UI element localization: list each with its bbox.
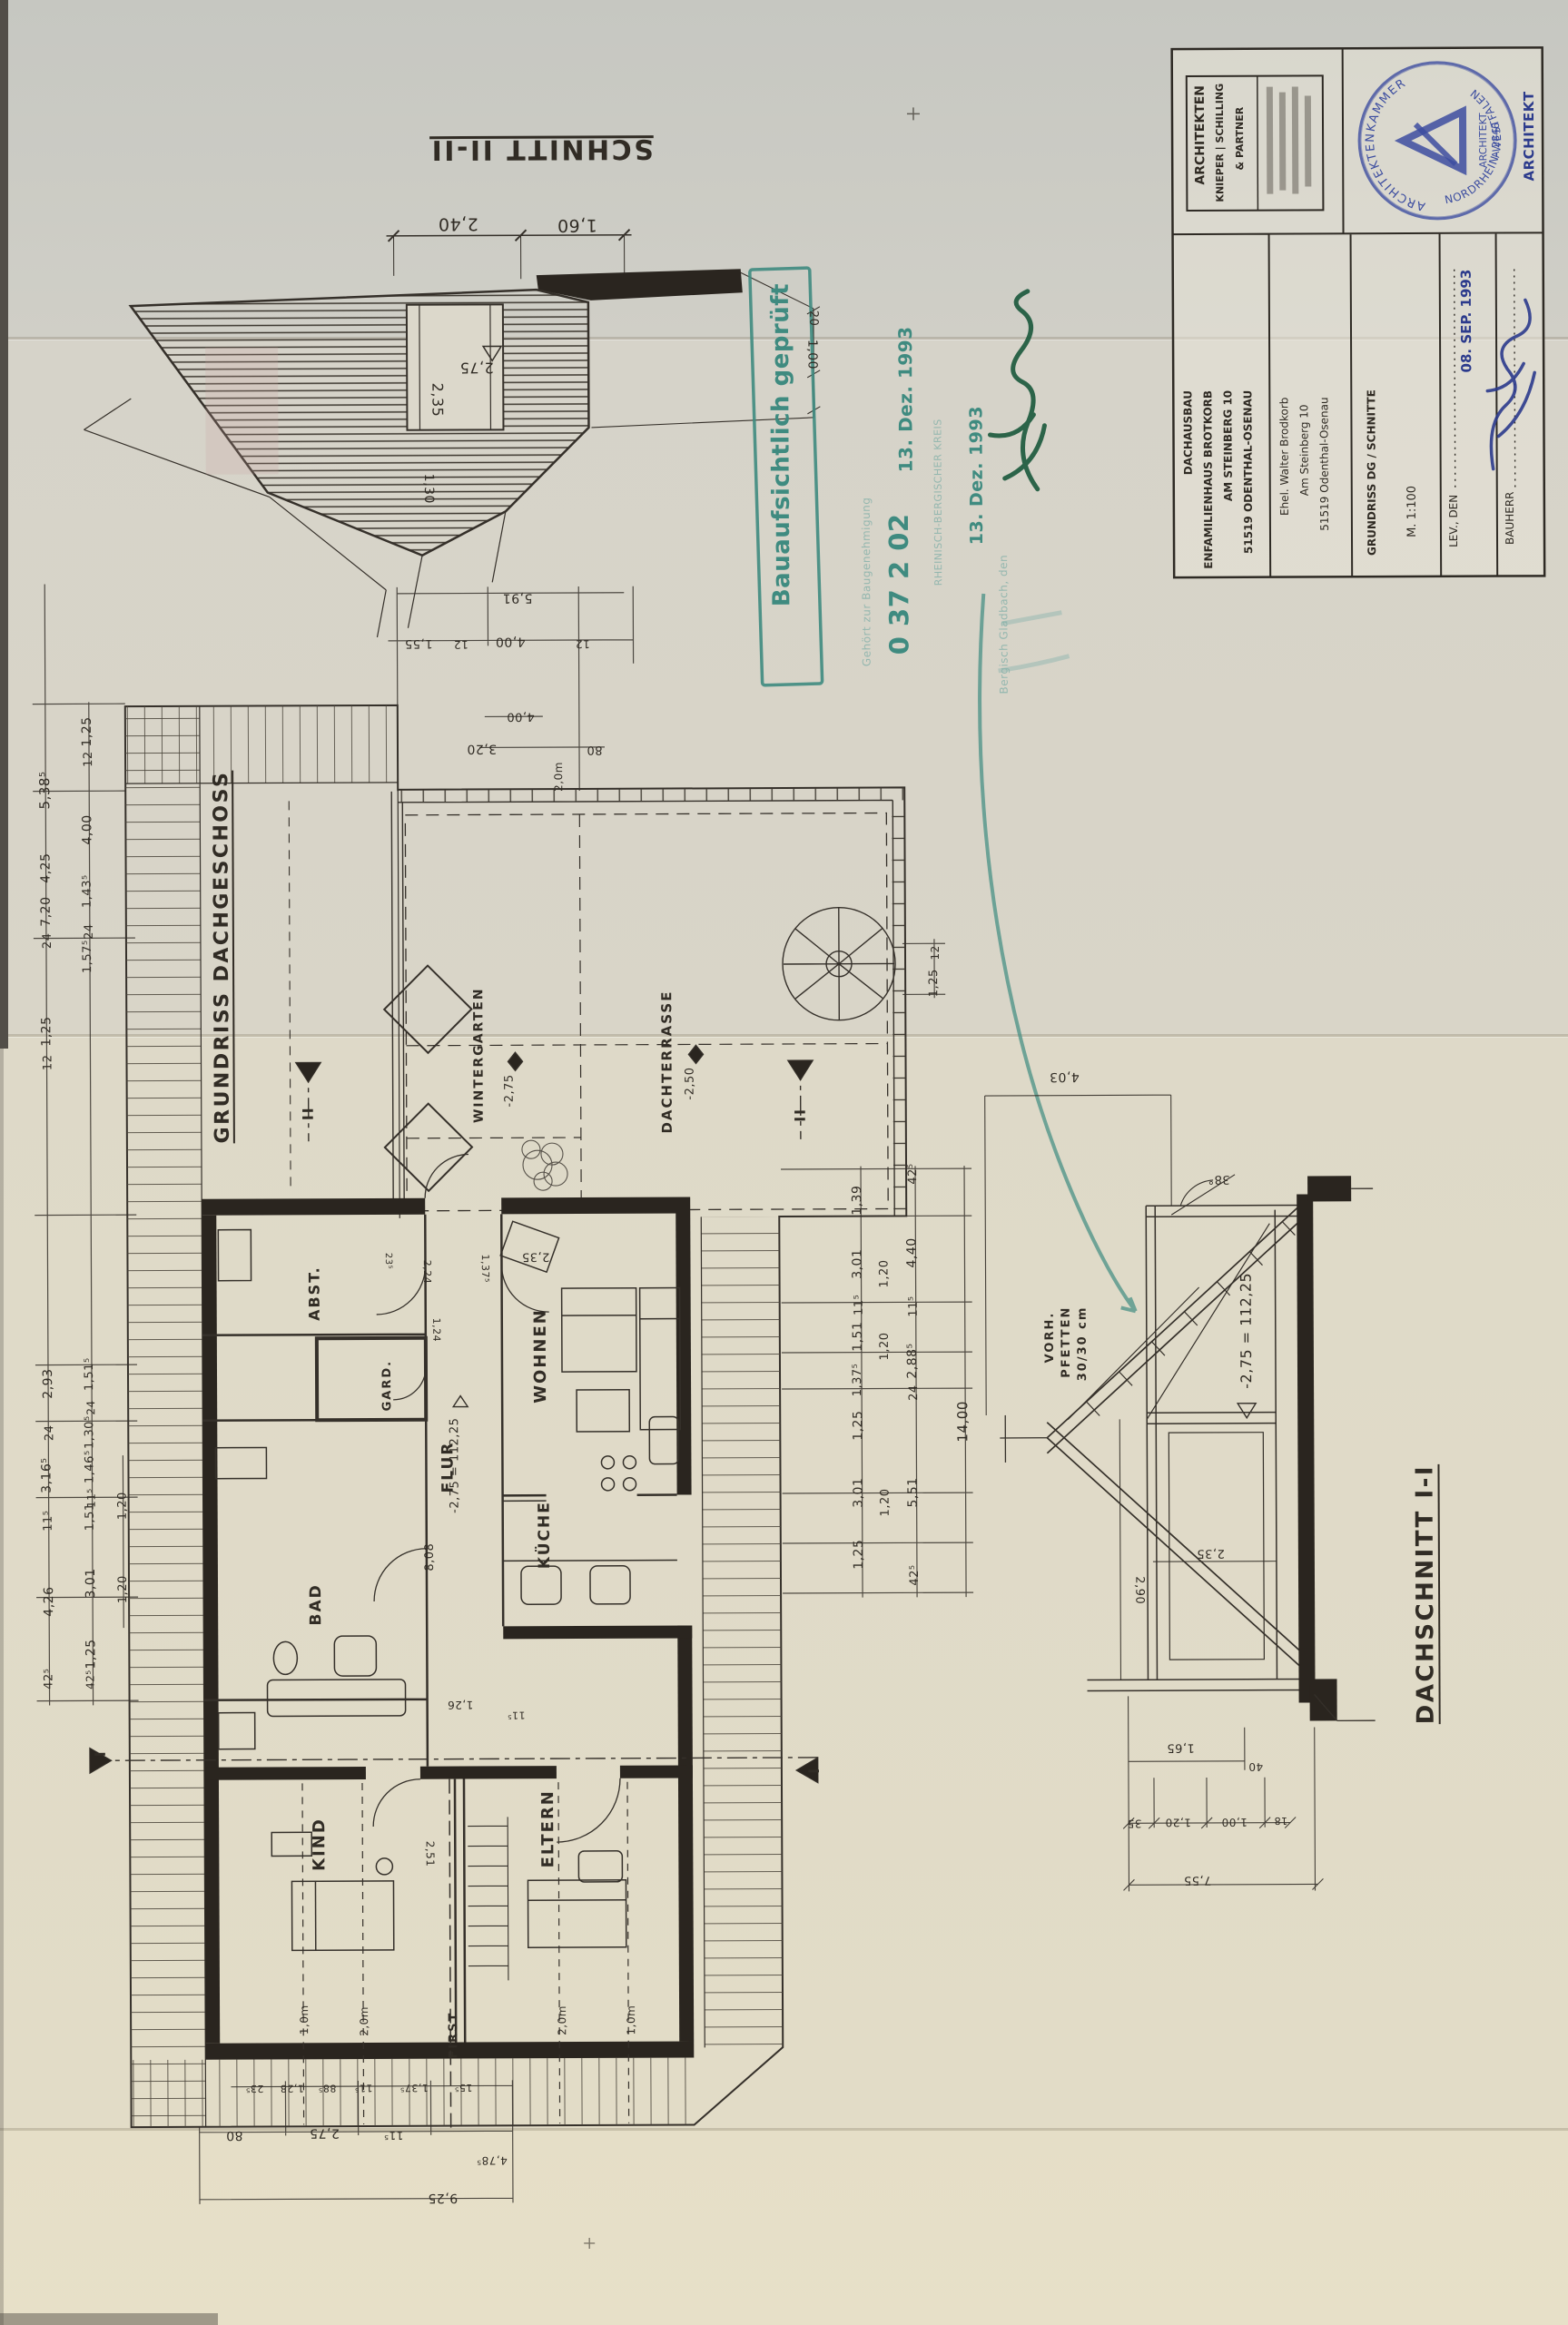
dim-label: 24 [909, 1384, 920, 1401]
svg-text:A 2846: A 2846 [1490, 123, 1502, 158]
dim-label: 1,20 [879, 1259, 890, 1287]
project-line: ENFAMILIENHAUS BROTKORB [1202, 390, 1214, 569]
dim-label: -2,75 = 112,25 [1239, 1273, 1254, 1389]
dim-label: 1,25 [853, 1540, 865, 1570]
dim-label: 1,25 [82, 716, 94, 746]
dim-label: 1,25 [41, 1017, 53, 1047]
dim-label: 4,25 [41, 853, 53, 883]
dim-label: 42⁵ [908, 1163, 919, 1184]
dim-label: 2,51 [424, 1841, 435, 1867]
firm-name-line3: & PARTNER [1235, 107, 1245, 171]
svg-text:ARCHITEKT: ARCHITEKT [1477, 113, 1489, 168]
dim-label: 4,00 [495, 635, 525, 646]
dim-label: 42⁵ [910, 1564, 921, 1585]
dim-label: 7,20 [41, 897, 53, 927]
plan-furniture [214, 1220, 682, 1950]
dim-label: 80 [587, 744, 603, 754]
room-label-eltern: ELTERN [540, 1789, 556, 1867]
dim-label: 1,0m [626, 2005, 637, 2035]
dim-label: 4,26 [44, 1587, 55, 1617]
dim-label: 1,20 [118, 1575, 129, 1603]
dim-label: 11⁵ [354, 2083, 372, 2093]
section-1-title: DACHSCHNITT I-I [1414, 1464, 1437, 1724]
approval-stamp: Bauaufsichtlich geprüft [770, 283, 794, 606]
dim-label: 30/30 cm [1078, 1306, 1090, 1382]
plan-walls [202, 1197, 694, 2059]
dim-label: 23⁵ [383, 1253, 392, 1269]
dim-label: 88⁵ [318, 2083, 336, 2093]
dim-label: PFETTEN [1061, 1306, 1073, 1378]
dim-label: 5,91 [502, 591, 532, 603]
dim-label: 1,65 [1167, 1741, 1195, 1752]
dim-label: 1,26 [448, 1699, 474, 1709]
dim-label: VORH. [1045, 1312, 1057, 1364]
dim-label: 4,00 [82, 814, 94, 844]
dim-label: II [794, 1108, 807, 1122]
dim-label: 2,35 [521, 1250, 549, 1261]
dim-label: FIRST [449, 2012, 460, 2059]
project-line: 51519 ODENTHAL-OSENAU [1242, 390, 1254, 554]
room-label-garderobe: GARD. [382, 1360, 394, 1412]
dim-label: -2,75 [505, 1074, 517, 1107]
dim-label: RHEINISCH-BERGISCHER KREIS [933, 419, 943, 586]
scanned-sheet: ARCHITEKTENKAMMER NORDRHEIN-WESTFALEN AR… [0, 0, 1568, 2325]
dim-label: 1,30⁵ [84, 1415, 96, 1449]
dim-label: 24 [86, 1400, 96, 1414]
client-line: Am Steinberg 10 [1298, 404, 1309, 496]
plan-title: GRUNDRISS DACHGESCHOSS [212, 771, 233, 1144]
section-2-drawing [83, 107, 922, 638]
dim-label: 11⁵ [854, 1295, 865, 1315]
dim-label: 23⁵ [245, 2084, 263, 2093]
dim-label: 4,78⁵ [477, 2154, 508, 2165]
dim-label: 15⁵ [454, 2083, 472, 2093]
dim-label: 1,28 [280, 2083, 304, 2093]
dim-label: 3,16⁵ [41, 1458, 53, 1493]
approver-signature [990, 291, 1045, 489]
date-stamp-sep: 08. SEP. 1993 [1460, 270, 1474, 373]
dim-label: 35 [1127, 1818, 1141, 1827]
client-line: 51519 Odenthal-Osenau [1318, 397, 1330, 530]
dim-label: 1,20 [118, 1492, 129, 1520]
dim-label: 11⁵ [508, 1709, 526, 1719]
dim-label: 1,20 [881, 1488, 892, 1516]
place-date-label: LEV., DEN [1448, 495, 1459, 547]
dim-label: 4,03 [1050, 1070, 1080, 1082]
dim-label: 3,01 [852, 1249, 863, 1279]
dim-label: 5,51 [908, 1477, 920, 1507]
dim-label: 1,25 [929, 969, 940, 997]
dim-label: 1,60 [557, 217, 597, 233]
dim-label: 12 [575, 638, 589, 648]
dim-label: 1,30 [422, 474, 434, 504]
dim-label: 4,00 [507, 710, 535, 721]
firm-name-line2: KNIEPER | SCHILLING [1215, 84, 1226, 202]
dim-label: 1,25 [853, 1411, 864, 1441]
dim-label: 12 [43, 1055, 54, 1071]
dim-label: 11⁵ [909, 1295, 920, 1316]
dim-label: 9,25 [428, 2192, 458, 2203]
dim-label: 40 [1248, 1761, 1263, 1771]
drawing-title: GRUNDRISS DG / SCHNITTE [1366, 389, 1377, 556]
spiral-stair [783, 907, 896, 1020]
dim-label: 2,0m [554, 762, 565, 792]
room-label-dachterrasse: DACHTERRASSE [660, 990, 674, 1134]
firm-name-line1: ARCHITEKTEN [1194, 85, 1207, 185]
dim-label: 3,20 [467, 742, 497, 754]
dim-label: II [301, 1106, 315, 1120]
dim-label: 3,01 [853, 1478, 865, 1508]
dim-label: 1,00 [1221, 1817, 1247, 1827]
dim-label: 2,88⁵ [907, 1343, 919, 1378]
dim-label: 12 [453, 639, 468, 649]
dim-label: 5,38⁵ [38, 772, 51, 810]
dim-label: -2,75 = 112,25 [449, 1418, 461, 1513]
dim-label: 2,90 [1133, 1576, 1144, 1604]
dim-label: 1,51⁵ [84, 1357, 96, 1391]
dim-label: 2,0m [557, 2005, 568, 2035]
dim-label: 1,51 [853, 1322, 864, 1352]
reviewer-pen-line [980, 593, 1136, 1312]
dim-label: 2,75 [459, 360, 494, 374]
dim-label: 8,08 [425, 1543, 436, 1571]
dim-label: Gehört zur Baugenehmigung [862, 498, 873, 667]
dim-label: 1,00 [805, 340, 817, 369]
dim-label: 14,00 [956, 1401, 969, 1443]
drawing-layer: ARCHITEKTENKAMMER NORDRHEIN-WESTFALEN AR… [0, 0, 1568, 2325]
dim-label: 3,01 [85, 1568, 97, 1598]
dim-label: 2,24 [421, 1260, 431, 1285]
dim-label: 1,37⁵ [853, 1364, 864, 1397]
client-sign-label: BAUHERR [1504, 491, 1515, 545]
dim-label: 4,40 [906, 1237, 918, 1267]
file-number-stamp: 0 37 2 02 [887, 513, 912, 655]
date-stamp-2: 13. Dez. 1993 [968, 406, 985, 545]
plant-sketch [522, 1140, 567, 1190]
room-label-wohnen: WOHNEN [533, 1308, 549, 1404]
dim-label: 24 [84, 923, 95, 940]
dim-label: 1,55 [404, 637, 432, 648]
dim-label: 2,35 [1197, 1547, 1225, 1558]
room-label-kind: KIND [311, 1818, 327, 1871]
dim-label: 7,55 [1183, 1874, 1211, 1885]
dim-label: 80 [226, 2129, 243, 2141]
floor-plan-drawing [32, 580, 976, 2204]
dim-label: 2,93 [43, 1369, 54, 1399]
dim-label: 12 [931, 945, 941, 960]
dim-label: 12 [84, 751, 94, 767]
architect-handnote: ARCHITEKT [1523, 91, 1536, 181]
room-label-bad: BAD [309, 1583, 323, 1625]
dim-label: Bergisch Gladbach, den [999, 555, 1010, 695]
dim-label: I [807, 1767, 821, 1774]
client-line: Ehel. Walter Brodkorb [1278, 398, 1290, 516]
dim-label: -2,50 [685, 1067, 697, 1099]
dim-label: 1,20 [880, 1332, 891, 1360]
dim-label: 24 [44, 1425, 55, 1442]
section-2-title: SCHNITT II-II [429, 135, 654, 163]
dim-label: 1,43⁵ [83, 874, 94, 908]
dim-label: 1,37⁵ [399, 2083, 428, 2093]
dim-label: 1,39 [852, 1186, 863, 1216]
dim-label: 18 [1274, 1816, 1287, 1826]
dim-label: 20 [807, 310, 818, 327]
dim-label: 2,35 [430, 383, 444, 418]
dim-label: 1,57⁵ [83, 940, 94, 973]
dim-label: 1,25 [85, 1639, 97, 1669]
dim-label: 1,51 [85, 1502, 96, 1531]
dim-label: 1,24 [431, 1318, 441, 1343]
dim-label: 1,20 [1165, 1817, 1191, 1827]
room-label-wintergarten: WINTERGARTEN [473, 987, 486, 1123]
dim-label: 24 [43, 933, 54, 950]
dim-label: 11⁵ [44, 1511, 54, 1532]
dim-label: 1,46⁵ [84, 1450, 96, 1483]
drawing-scale: M. 1:100 [1406, 486, 1418, 537]
dim-label: I [94, 1749, 107, 1757]
date-stamp-1: 13. Dez. 1993 [897, 326, 915, 472]
project-line: DACHAUSBAU [1182, 390, 1193, 475]
dim-label: 2,75 [310, 2126, 340, 2138]
room-label-abstellraum: ABST. [307, 1266, 321, 1321]
room-label-kueche: KÜCHE [537, 1501, 552, 1569]
dim-label: 42⁵ [85, 1670, 95, 1690]
project-line: AM STEINBERG 10 [1222, 390, 1234, 501]
dim-label: 1,0m [300, 2005, 311, 2034]
dim-label: 1,37⁵ [479, 1254, 489, 1282]
roof-section-drawing [579, 1094, 1378, 2249]
dim-label: 38° [1208, 1173, 1230, 1184]
dim-label: 2,0m [360, 2006, 370, 2036]
dim-label: 42⁵ [44, 1669, 54, 1690]
dim-label: 11⁵ [384, 2130, 404, 2140]
dim-label: 2,40 [438, 215, 478, 232]
